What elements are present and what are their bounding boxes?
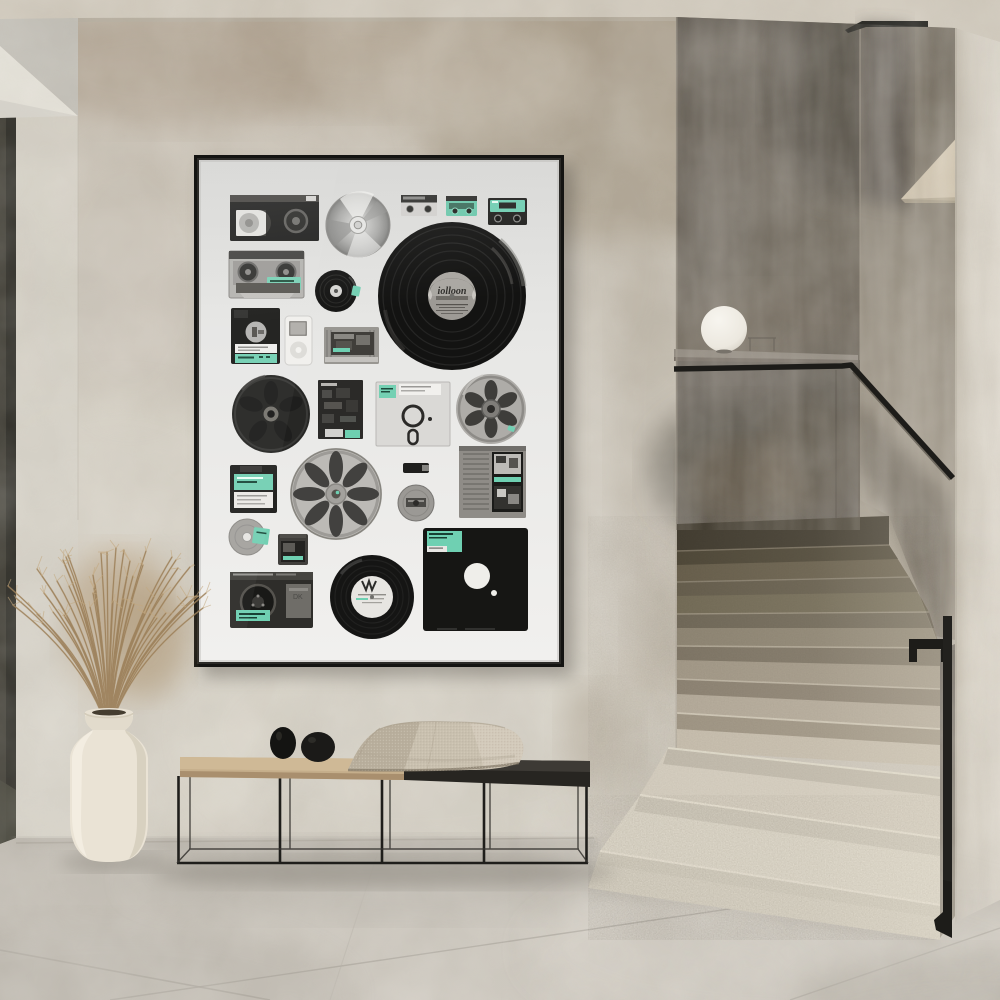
svg-text:DK: DK (293, 594, 303, 601)
